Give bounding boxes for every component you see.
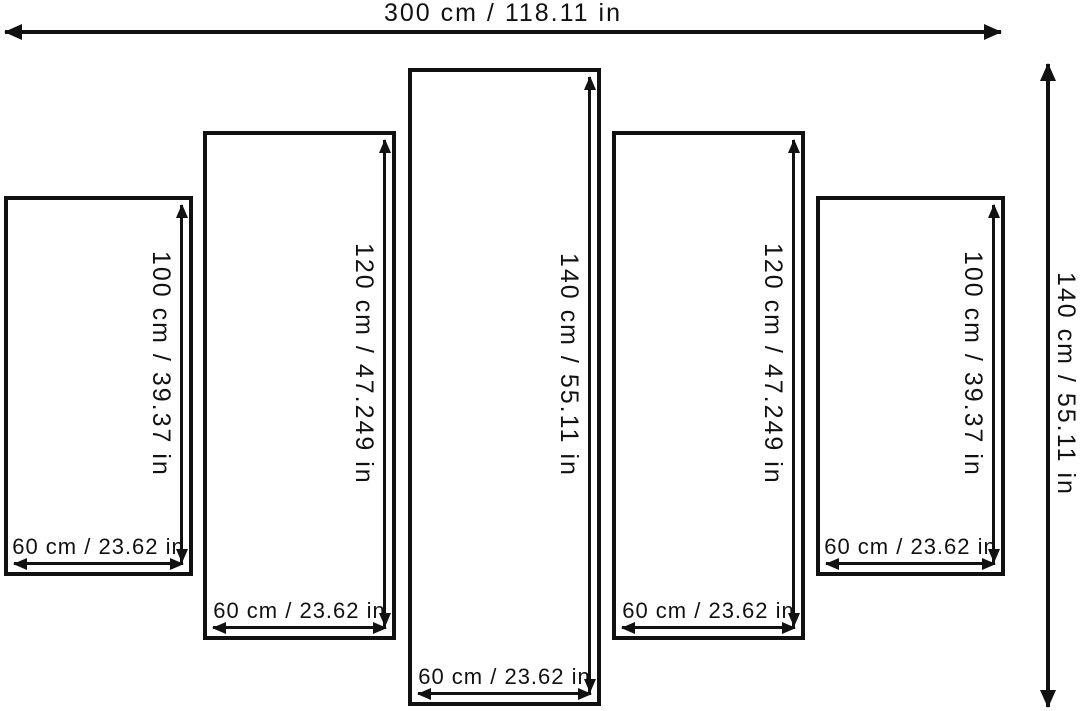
panel-left-outer: 100 cm / 39.37 in 60 cm / 23.62 in	[4, 196, 193, 576]
panel-width-label: 60 cm / 23.62 in	[207, 600, 392, 622]
panel-width-label: 60 cm / 23.62 in	[820, 536, 1001, 558]
panel-center: 140 cm / 55.11 in 60 cm / 23.62 in	[408, 68, 601, 706]
panel-height-label: 100 cm / 39.37 in	[146, 204, 175, 524]
panel-right-outer: 100 cm / 39.37 in 60 cm / 23.62 in	[816, 196, 1005, 576]
panel-width-arrow	[213, 626, 386, 629]
panel-height-arrow	[383, 140, 386, 626]
panel-height-label: 100 cm / 39.37 in	[958, 204, 987, 524]
canvas-dimension-diagram: 300 cm / 118.11 in 140 cm / 55.11 in 100…	[0, 0, 1080, 711]
panel-height-arrow	[588, 77, 591, 692]
panel-width-arrow	[418, 692, 591, 695]
panel-height-arrow	[180, 205, 183, 562]
panel-right-inner: 120 cm / 47.249 in 60 cm / 23.62 in	[612, 131, 805, 640]
overall-width-label: 300 cm / 118.11 in	[5, 1, 1001, 30]
panel-width-arrow	[14, 562, 183, 565]
panel-width-arrow	[622, 626, 795, 629]
panel-width-label: 60 cm / 23.62 in	[8, 536, 189, 558]
panel-width-arrow	[826, 562, 995, 565]
overall-width-dimension: 300 cm / 118.11 in	[5, 1, 1001, 34]
panel-height-label: 140 cm / 55.11 in	[554, 76, 583, 654]
panel-left-inner: 120 cm / 47.249 in 60 cm / 23.62 in	[203, 131, 396, 640]
panel-width-label: 60 cm / 23.62 in	[412, 666, 597, 688]
panel-height-arrow	[792, 140, 795, 626]
overall-height-arrow	[1046, 64, 1050, 707]
panel-width-label: 60 cm / 23.62 in	[616, 600, 801, 622]
panel-height-label: 120 cm / 47.249 in	[349, 139, 378, 588]
panel-height-arrow	[992, 205, 995, 562]
overall-height-label: 140 cm / 55.11 in	[1051, 64, 1080, 704]
overall-width-arrow	[5, 30, 1001, 34]
panel-height-label: 120 cm / 47.249 in	[758, 139, 787, 588]
